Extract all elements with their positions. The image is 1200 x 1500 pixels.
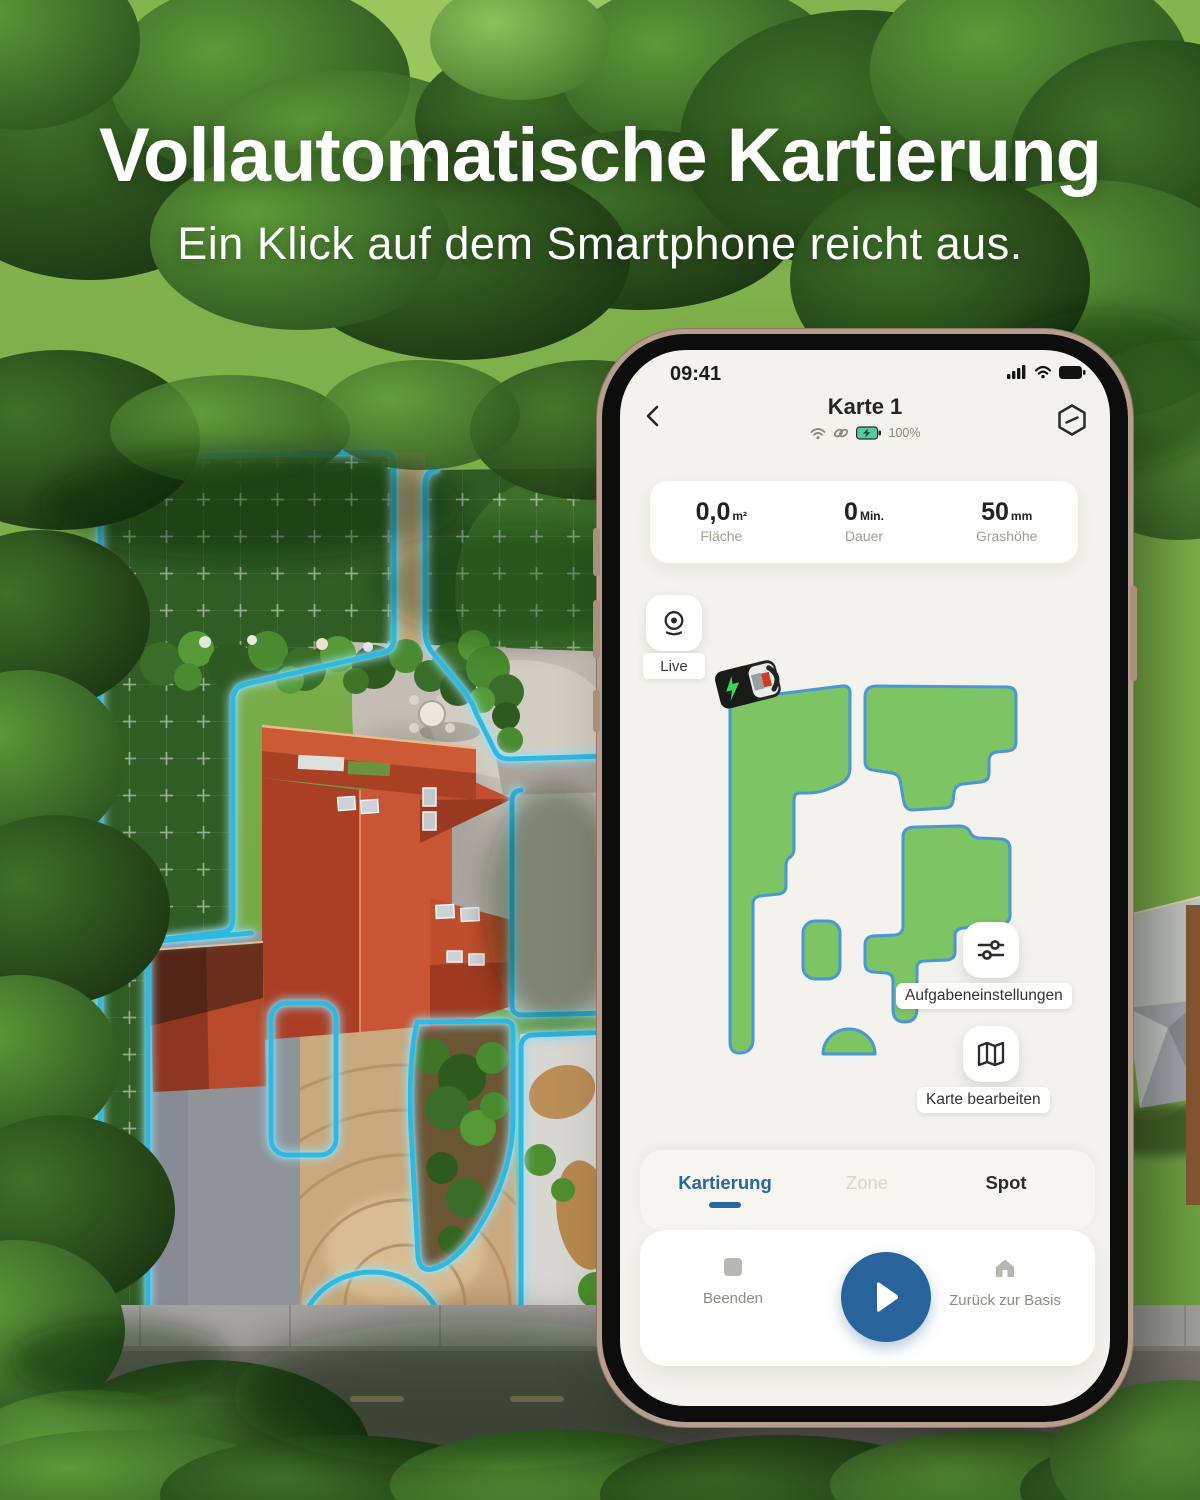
stop-icon (724, 1258, 742, 1276)
edit-map-button[interactable] (963, 1026, 1019, 1082)
hero-title: Vollautomatische Kartierung (0, 112, 1200, 199)
tab-zone[interactable]: Zone (797, 1172, 937, 1194)
map-zone-left[interactable] (730, 686, 850, 1053)
phone-action-button (593, 528, 600, 576)
stat-area: 0,0m² Fläche (650, 481, 793, 563)
stat-area-label: Fläche (700, 528, 742, 544)
marketing-banner: Vollautomatische Kartierung Ein Klick au… (0, 0, 1200, 1500)
stat-area-unit: m² (732, 509, 747, 523)
stat-duration-unit: Min. (860, 509, 884, 523)
play-icon (871, 1280, 901, 1314)
status-icons (1007, 365, 1086, 379)
task-settings-button[interactable] (963, 922, 1019, 978)
stat-duration-label: Dauer (845, 528, 883, 544)
stat-duration: 0Min. Dauer (793, 481, 936, 563)
edit-map-label: Karte bearbeiten (917, 1087, 1050, 1113)
map-zone-top-right[interactable] (865, 686, 1016, 810)
smartphone-mockup: 09:41 Karte 1 (602, 334, 1128, 1422)
active-tab-underline (709, 1202, 741, 1208)
page-title: Karte 1 (620, 394, 1110, 420)
stat-grass-unit: mm (1011, 509, 1032, 523)
live-camera-button[interactable] (646, 595, 702, 651)
stop-label: Beenden (703, 1290, 763, 1307)
task-settings-label: Aufgabeneinstellungen (896, 983, 1072, 1009)
stat-area-value: 0,0 (696, 498, 731, 526)
link-icon (833, 426, 849, 440)
return-to-base-button[interactable]: Zurück zur Basis (940, 1258, 1070, 1309)
stop-button[interactable]: Beenden (668, 1258, 798, 1307)
camera-icon (660, 609, 688, 637)
sliders-icon (975, 934, 1007, 966)
wifi-status-icon (810, 427, 826, 440)
mode-tabs: Kartierung Zone Spot (640, 1150, 1095, 1230)
play-button[interactable] (841, 1252, 931, 1342)
tab-kartierung[interactable]: Kartierung (655, 1172, 795, 1194)
house-icon (994, 1258, 1016, 1278)
battery-percent: 100% (889, 426, 921, 440)
stats-card: 0,0m² Fläche 0Min. Dauer 50mm Grashöhe (650, 481, 1078, 563)
battery-icon (1059, 366, 1086, 379)
stat-grass-height: 50mm Grashöhe (935, 481, 1078, 563)
wifi-icon (1034, 365, 1052, 379)
return-to-base-label: Zurück zur Basis (949, 1292, 1061, 1309)
phone-volume-up-button (593, 600, 600, 658)
status-time: 09:41 (670, 363, 721, 386)
stat-duration-value: 0 (844, 498, 858, 526)
stat-grass-value: 50 (981, 498, 1009, 526)
phone-volume-down-button (593, 690, 600, 732)
folded-map-icon (975, 1039, 1007, 1069)
dock-station-button[interactable] (1054, 402, 1090, 438)
live-label: Live (643, 653, 705, 679)
map-zone-small[interactable] (803, 921, 840, 979)
connectivity-row: 100% (620, 426, 1110, 440)
signal-bars-icon (1007, 365, 1027, 379)
controls-card: Beenden Zurück zur Basis (640, 1230, 1095, 1366)
tab-spot[interactable]: Spot (936, 1172, 1076, 1194)
hero-subtitle: Ein Klick auf dem Smartphone reicht aus. (0, 218, 1200, 270)
stat-grass-label: Grashöhe (976, 528, 1037, 544)
phone-power-button (1130, 586, 1137, 681)
phone-screen: 09:41 Karte 1 (620, 350, 1110, 1406)
mower-battery-icon (856, 426, 882, 440)
map-zone-dome[interactable] (823, 1029, 875, 1054)
